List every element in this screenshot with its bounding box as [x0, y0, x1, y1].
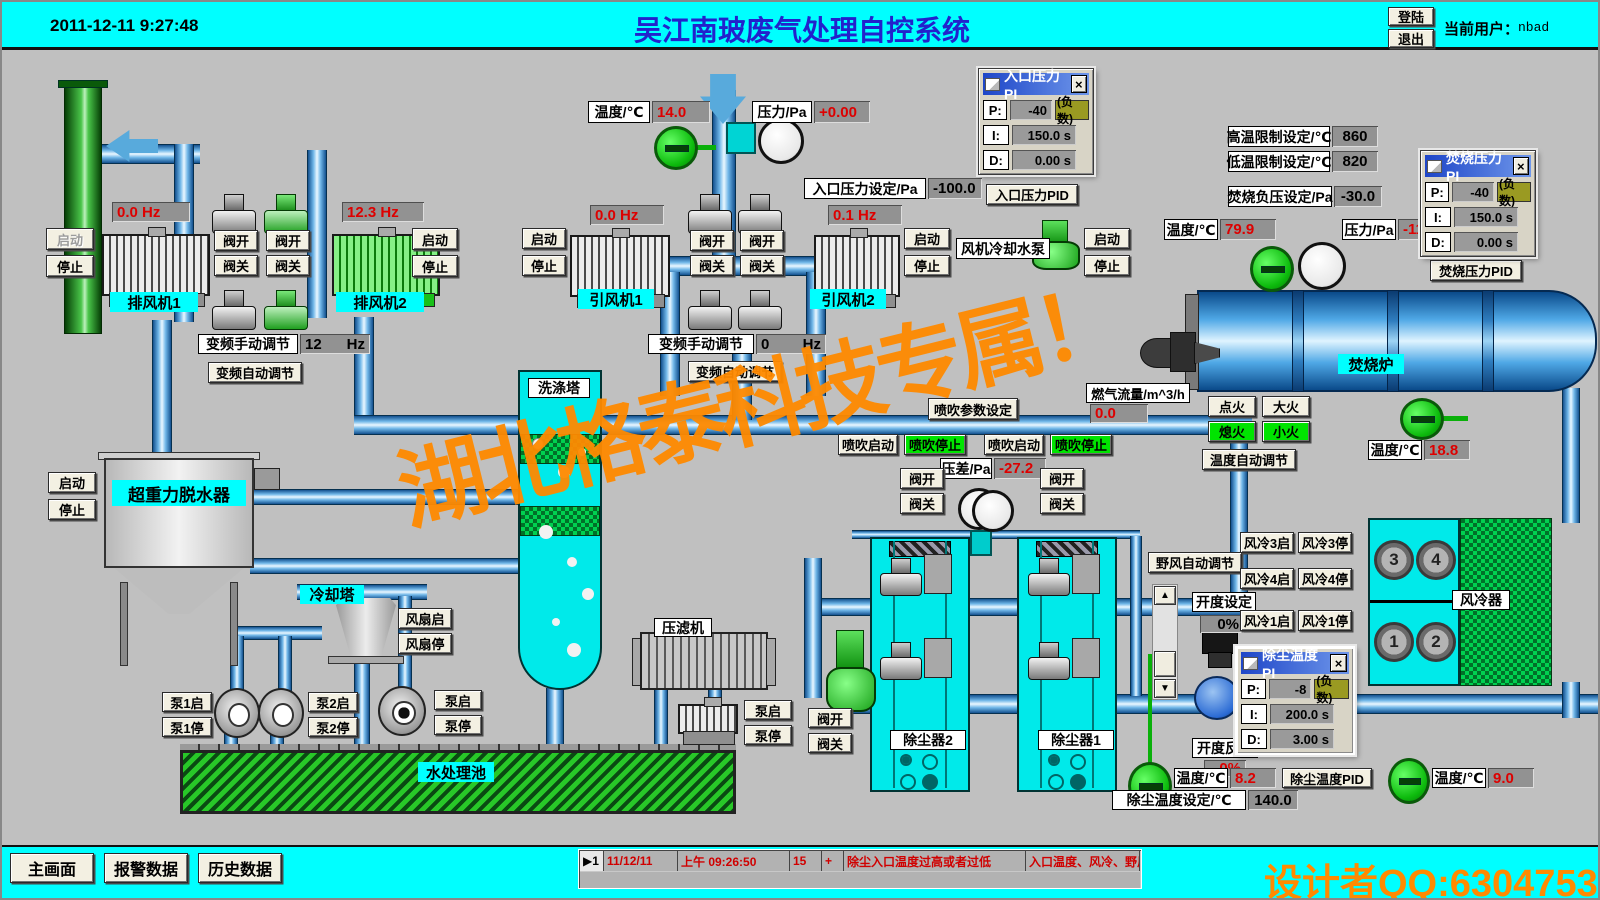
burn-temp-label: 温度/℃: [1164, 219, 1218, 240]
small-fire-button[interactable]: 小火: [1262, 421, 1310, 442]
inlet-valve1-close-button[interactable]: 阀关: [690, 255, 734, 276]
pid-i-value[interactable]: 150.0 s: [1454, 207, 1518, 227]
tower-pump-stop-button[interactable]: 泵停: [434, 715, 482, 735]
pid-p-label: P:: [983, 100, 1007, 120]
low-temp-limit-label: 低温限制设定/℃: [1228, 151, 1330, 172]
valve: [1028, 558, 1068, 596]
high-temp-limit-label: 高温限制设定/℃: [1228, 126, 1330, 147]
dialog-titlebar[interactable]: 焚烧压力PI ×: [1425, 155, 1531, 177]
current-user-label: 当前用户：: [1444, 18, 1519, 39]
negative-badge: (负数): [1497, 182, 1531, 202]
valve: [1028, 642, 1068, 680]
top-bar: 2011-12-11 9:27:48 吴江南玻废气处理自控系统 登陆 退出 当前…: [2, 2, 1600, 50]
gauge-icon: [972, 490, 1014, 532]
negative-badge: (负数): [1055, 100, 1089, 120]
pipe: [1562, 388, 1580, 523]
datetime: 2011-12-11 9:27:48: [50, 16, 198, 36]
temp-sensor-icon: [1388, 758, 1430, 804]
inlet-press-value: +0.00: [814, 101, 870, 123]
fire-off-button[interactable]: 熄火: [1208, 421, 1256, 442]
aircool-fan-3: 3: [1374, 540, 1414, 580]
incinerator-label: 焚烧炉: [1338, 354, 1404, 374]
valve: [880, 558, 920, 596]
tank-holes: [900, 754, 912, 766]
tower-pump: [378, 686, 426, 736]
valve-body: [1072, 554, 1100, 594]
exhaust-fan2-stop-button[interactable]: 停止: [412, 255, 458, 277]
valve-body: [924, 638, 952, 678]
dialog-titlebar[interactable]: 入口压力PI ×: [983, 73, 1089, 95]
cyan-valve: [970, 530, 992, 556]
valve: [212, 290, 254, 330]
inlet-fan2-stop-button[interactable]: 停止: [904, 255, 950, 276]
furnace-ring: [1292, 290, 1304, 392]
valve: [212, 194, 254, 234]
pipe: [250, 558, 522, 574]
hz-unit: Hz: [347, 336, 365, 353]
divider: [1370, 600, 1458, 603]
exhaust-vfd-number: 12: [305, 336, 322, 353]
inlet-fan1-hz: 0.0 Hz: [590, 205, 664, 225]
alarm-variables: 入口温度、风冷、野风: [1026, 851, 1140, 871]
temp-sensor-icon: [654, 126, 698, 170]
temp-auto-adjust-button[interactable]: 温度自动调节: [1202, 449, 1296, 470]
sensor-stem: [696, 145, 716, 150]
alarm-row[interactable]: ▶1 11/12/11 上午 09:26:50 15 + 除尘入口温度过高或者过…: [580, 851, 1140, 871]
dust2-valve-open-button[interactable]: 阀开: [900, 468, 944, 489]
chimney-stack: [64, 86, 102, 334]
burn-negpress-set-value[interactable]: -30.0: [1334, 186, 1382, 207]
spray1-stop-button[interactable]: 喷吹停止: [904, 434, 966, 455]
furnace-ring: [1387, 290, 1399, 392]
cooling-tower: [336, 598, 396, 658]
pid-i-label: I:: [983, 125, 1009, 145]
valve: [880, 642, 920, 680]
control-valve-neck: [1208, 652, 1232, 668]
pump2-start-button[interactable]: 泵2启: [308, 692, 358, 712]
dialog-icon: [1243, 657, 1258, 670]
inlet-press-label: 压力/Pa: [752, 101, 812, 123]
dust-line-green-valve: [826, 630, 872, 712]
gas-flow-value: 0.0: [1090, 404, 1148, 423]
aircool-fan-2: 2: [1416, 622, 1456, 662]
dehydrator-leg: [230, 582, 238, 666]
aircool-fan-4: 4: [1416, 540, 1456, 580]
inlet-fan2-hz: 0.1 Hz: [828, 205, 902, 225]
aircool3-start-button[interactable]: 风冷3启: [1240, 532, 1294, 553]
pid-i-value[interactable]: 150.0 s: [1012, 125, 1076, 145]
dehydrator-actuator: [254, 468, 280, 490]
dehydrator-body: [104, 458, 254, 568]
filter-press-pump-motor: [678, 704, 738, 734]
dialog-titlebar[interactable]: 除尘温度PI ×: [1241, 652, 1349, 674]
close-icon[interactable]: ×: [1330, 654, 1347, 672]
pipe: [1130, 536, 1142, 696]
scrubber-dome: [518, 642, 602, 690]
dust1-valve-open-button[interactable]: 阀开: [1040, 468, 1084, 489]
pressure-gauge-icon: [1298, 242, 1346, 290]
pump1-start-button[interactable]: 泵1启: [162, 692, 212, 712]
scada-main-screen: 2011-12-11 9:27:48 吴江南玻废气处理自控系统 登陆 退出 当前…: [0, 0, 1600, 900]
opening-set-label: 开度设定: [1192, 592, 1256, 612]
dust2-valve-close-button[interactable]: 阀关: [900, 493, 944, 514]
spray2-start-button[interactable]: 喷吹启动: [984, 434, 1044, 455]
pump1: [214, 688, 260, 738]
pid-d-value[interactable]: 0.00 s: [1012, 150, 1076, 170]
temp-sensor-icon: [1400, 398, 1444, 440]
exhaust-fan1-motor: [102, 234, 210, 296]
alarm-time: 上午 09:26:50: [678, 851, 790, 871]
inlet-press-set-label: 入口压力设定/Pa: [804, 178, 926, 199]
filter-press-endcap: [766, 638, 776, 686]
inlet-valve2-close-button[interactable]: 阀关: [740, 255, 784, 276]
furnace-out-temp-label: 温度/℃: [1368, 440, 1422, 460]
ignite-button[interactable]: 点火: [1208, 396, 1256, 417]
pid-i-value[interactable]: 200.0 s: [1270, 704, 1334, 724]
burn-negpress-set-label: 焚烧负压设定/Pa: [1228, 186, 1332, 207]
inlet-pressure-pid-button[interactable]: 入口压力PID: [986, 184, 1078, 205]
burn-pressure-pid-dialog: 焚烧压力PI × P:-40(负数) I:150.0 s D:0.00 s: [1420, 150, 1536, 257]
page-title: 吴江南玻废气处理自控系统: [602, 9, 1002, 49]
history-data-button[interactable]: 历史数据: [198, 853, 282, 883]
pipe: [354, 317, 374, 422]
exhaust-vfd-manual-value[interactable]: 12Hz: [300, 334, 370, 354]
pressure-gauge-icon: [758, 118, 804, 164]
dialog-icon: [1427, 160, 1442, 173]
dp-label: 压差/Pa: [940, 458, 992, 479]
dust1-valve-close-button[interactable]: 阀关: [1040, 493, 1084, 514]
temp-sensor-icon: [1250, 246, 1294, 292]
dust-collector-1-label: 除尘器1: [1038, 730, 1114, 750]
inlet-press-set-value[interactable]: -100.0: [928, 178, 982, 199]
chimney-cap: [58, 80, 108, 88]
dp-value: -27.2: [994, 458, 1046, 479]
aircool3-stop-button[interactable]: 风冷3停: [1298, 532, 1352, 553]
aircool4-start-button[interactable]: 风冷4启: [1240, 568, 1294, 589]
pipe: [546, 688, 564, 750]
sensor-stem: [1442, 416, 1468, 421]
dehydrator-start-button[interactable]: 启动: [48, 472, 96, 493]
valve: [738, 290, 780, 330]
dust-temp-set-value[interactable]: 140.0: [1248, 790, 1298, 810]
furnace-out-temp-value: 18.8: [1424, 440, 1470, 460]
opening-scrollbar[interactable]: ▲ ▼: [1152, 584, 1178, 700]
exhaust-fan2-hz: 12.3 Hz: [342, 202, 424, 222]
dust-out-temp-label: 温度/℃: [1432, 768, 1486, 788]
pump2: [258, 688, 304, 738]
alarm-no: 1: [592, 854, 599, 868]
tower-fan-start-button[interactable]: 风扇启: [398, 608, 452, 629]
alarm-date: 11/12/11: [604, 851, 678, 871]
dialog-icon: [985, 78, 1000, 91]
pid-p-value[interactable]: -8: [1269, 679, 1311, 699]
pump1-stop-button[interactable]: 泵1停: [162, 717, 212, 737]
fan-cooling-pump-label: 风机冷却水泵: [956, 238, 1050, 259]
login-button[interactable]: 登陆: [1388, 7, 1434, 26]
pipe: [307, 150, 327, 318]
dust-collector-2-label: 除尘器2: [890, 730, 966, 750]
inlet-fan1-stop-button[interactable]: 停止: [522, 255, 566, 276]
filter-press: [640, 632, 768, 690]
pid-p-value[interactable]: -40: [1010, 100, 1052, 120]
dust-temp-set-label: 除尘温度设定/℃: [1112, 790, 1246, 810]
dust-temp-pid-button[interactable]: 除尘温度PID: [1282, 768, 1372, 788]
current-user: nbad: [1518, 20, 1549, 35]
valve: [688, 290, 730, 330]
dust-temp-pid-dialog: 除尘温度PI × P:-8(负数) I:200.0 s D:3.00 s: [1235, 646, 1355, 755]
aircool-fan-1: 1: [1374, 622, 1414, 662]
scroll-down-icon[interactable]: ▼: [1154, 679, 1176, 698]
exhaust-fan2-label: 排风机2: [336, 292, 424, 312]
exhaust-fan1-hz: 0.0 Hz: [112, 202, 190, 222]
pid-d-label: D:: [1425, 232, 1451, 252]
dust-out-temp-value: 9.0: [1488, 768, 1534, 788]
cyan-valve: [726, 122, 756, 154]
exhaust-vfd-auto-button[interactable]: 变频自动调节: [208, 362, 302, 383]
valve: [688, 194, 730, 234]
alarm-row-empty: [580, 872, 1140, 888]
close-icon[interactable]: ×: [1513, 157, 1529, 175]
exhaust-valve1-close-button[interactable]: 阀关: [214, 255, 258, 276]
inlet-temp-label: 温度/℃: [588, 101, 650, 123]
designer-watermark: 设计者QQ:6304753: [1264, 852, 1598, 900]
pipe: [1562, 682, 1580, 718]
opening-set-value: 0%: [1200, 615, 1244, 633]
dust-in-temp-value: 8.2: [1230, 768, 1276, 788]
aircool1-stop-button[interactable]: 风冷1停: [1298, 610, 1352, 631]
alarm-data-button[interactable]: 报警数据: [104, 853, 188, 883]
negative-badge: (负数): [1314, 679, 1349, 699]
exhaust-vfd-manual-label: 变频手动调节: [198, 334, 298, 354]
aircool1-start-button[interactable]: 风冷1启: [1240, 610, 1294, 631]
alarm-code: 15: [790, 851, 822, 871]
inlet-fan1-start-button[interactable]: 启动: [522, 228, 566, 249]
aircool4-stop-button[interactable]: 风冷4停: [1298, 568, 1352, 589]
alarm-plus: +: [822, 851, 844, 871]
pipe: [232, 626, 322, 640]
exhaust-valve1-open-button[interactable]: 阀开: [214, 230, 258, 251]
dehydrator-stop-button[interactable]: 停止: [48, 499, 96, 520]
tank-holes: [1048, 754, 1060, 766]
filter-press-label: 压滤机: [654, 618, 712, 637]
valve: [264, 290, 306, 330]
water-pool-label: 水处理池: [418, 762, 494, 782]
burner-body: [1170, 332, 1196, 372]
close-icon[interactable]: ×: [1071, 75, 1087, 93]
pid-p-label: P:: [1425, 182, 1449, 202]
inlet-temp-value: 14.0: [652, 101, 710, 123]
scroll-thumb[interactable]: [1154, 651, 1176, 677]
pid-d-value[interactable]: 3.00 s: [1270, 729, 1334, 749]
valve-body: [924, 554, 952, 594]
logout-button[interactable]: 退出: [1388, 29, 1434, 48]
filter-pump-stop-button[interactable]: 泵停: [744, 725, 792, 745]
burn-pressure-pid-button[interactable]: 焚烧压力PID: [1430, 260, 1522, 281]
exhaust-fan1-stop-button[interactable]: 停止: [46, 255, 94, 277]
pid-p-value[interactable]: -40: [1452, 182, 1494, 202]
pump2-stop-button[interactable]: 泵2停: [308, 717, 358, 737]
furnace-ring: [1482, 290, 1494, 392]
cooling-tower-label: 冷却塔: [300, 585, 364, 604]
control-valve-body: [1194, 676, 1240, 720]
valve-body: [1072, 638, 1100, 678]
tower-fan-stop-button[interactable]: 风扇停: [398, 633, 452, 654]
exhaust-fan2-start-button[interactable]: 启动: [412, 228, 458, 250]
burn-temp-value: 79.9: [1220, 219, 1276, 240]
dust-line-valve-close-button[interactable]: 阀关: [808, 733, 852, 753]
high-temp-limit-value[interactable]: 860: [1332, 126, 1378, 147]
exhaust-valve2-open-button[interactable]: 阀开: [266, 230, 310, 251]
dust-in-temp-label: 温度/℃: [1174, 768, 1228, 788]
pid-d-label: D:: [983, 150, 1009, 170]
pipe: [278, 636, 292, 696]
dehydrator-label: 超重力脱水器: [112, 480, 246, 506]
dehydrator-leg: [120, 582, 128, 666]
pid-d-value[interactable]: 0.00 s: [1454, 232, 1518, 252]
gas-flow-label: 燃气流量/m^3/h: [1086, 383, 1190, 403]
inlet-valve2-open-button[interactable]: 阀开: [740, 230, 784, 251]
exhaust-valve2-close-button[interactable]: 阀关: [266, 255, 310, 276]
air-cooler-label: 风冷器: [1452, 590, 1510, 610]
big-fire-button[interactable]: 大火: [1262, 396, 1310, 417]
burn-press-label: 压力/Pa: [1342, 219, 1396, 240]
pid-i-label: I:: [1241, 704, 1267, 724]
d ust-line-valve-open-button[interactable]: 阀开: [808, 708, 852, 728]
valve: [738, 194, 780, 234]
inlet-pressure-pid-dialog: 入口压力PI × P:-40(负数) I:150.0 s D:0.00 s: [978, 68, 1094, 175]
row-marker-icon: ▶: [583, 854, 592, 868]
spray2-stop-button[interactable]: 喷吹停止: [1050, 434, 1112, 455]
main-screen-button[interactable]: 主画面: [10, 853, 94, 883]
pid-p-label: P:: [1241, 679, 1266, 699]
low-temp-limit-value[interactable]: 820: [1332, 151, 1378, 172]
inlet-fan1-label: 引风机1: [578, 289, 654, 309]
scroll-up-icon[interactable]: ▲: [1154, 586, 1176, 605]
inlet-valve1-open-button[interactable]: 阀开: [690, 230, 734, 251]
exhaust-fan1-start-button[interactable]: 启动: [46, 228, 94, 250]
dehydrator-cone: [114, 568, 244, 614]
pipe: [152, 320, 172, 462]
filter-pump-start-button[interactable]: 泵启: [744, 700, 792, 720]
exhaust-fan1-label: 排风机1: [110, 292, 198, 312]
alarm-strip[interactable]: ▶1 11/12/11 上午 09:26:50 15 + 除尘入口温度过高或者过…: [578, 849, 1142, 889]
pid-i-label: I:: [1425, 207, 1451, 227]
inlet-fan2-start-button[interactable]: 启动: [904, 228, 950, 249]
pid-d-label: D:: [1241, 729, 1267, 749]
valve: [264, 194, 306, 234]
pipe: [804, 558, 822, 698]
wild-wind-auto-button[interactable]: 野风自动调节: [1148, 552, 1242, 573]
tower-pump-start-button[interactable]: 泵启: [434, 690, 482, 710]
cooling-tower-base: [328, 656, 404, 664]
alarm-message: 除尘入口温度过高或者过低: [844, 851, 1026, 871]
